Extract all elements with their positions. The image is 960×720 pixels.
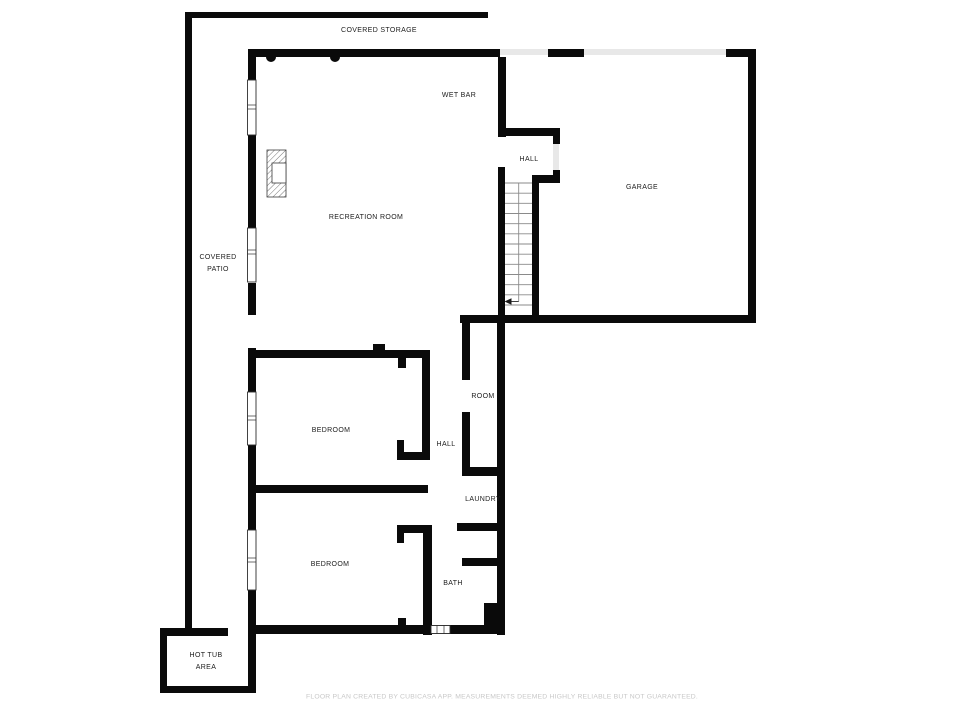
label-covered-patio: COVERED PATIO xyxy=(199,252,236,276)
label-garage: GARAGE xyxy=(626,182,658,194)
label-bedroom-lower: BEDROOM xyxy=(311,559,350,571)
label-laundry: LAUNDRY xyxy=(465,494,501,506)
label-bedroom-upper: BEDROOM xyxy=(312,425,351,437)
fireplace-icon xyxy=(267,150,286,197)
interior-walls xyxy=(248,57,560,635)
staircase-icon xyxy=(505,183,533,305)
covered-storage-walls xyxy=(185,12,488,633)
door-hinge-icons xyxy=(266,57,340,62)
floor-plan-drawing xyxy=(0,0,960,720)
floor-plan-canvas: COVERED STORAGE WET BAR HALL GARAGE RECR… xyxy=(0,0,960,720)
label-hot-tub-area: HOT TUB AREA xyxy=(190,650,223,674)
stair-direction-arrow xyxy=(505,298,512,305)
label-wet-bar: WET BAR xyxy=(442,90,476,102)
label-hall-upper: HALL xyxy=(520,154,539,166)
label-bath: BATH xyxy=(443,578,463,590)
exterior-walls xyxy=(248,49,756,693)
label-hall-lower: HALL xyxy=(437,439,456,451)
label-recreation-room: RECREATION ROOM xyxy=(329,212,403,224)
footer-disclaimer: FLOOR PLAN CREATED BY CUBICASA APP. MEAS… xyxy=(306,694,698,701)
label-covered-storage: COVERED STORAGE xyxy=(341,25,417,37)
label-room: ROOM xyxy=(471,391,494,403)
